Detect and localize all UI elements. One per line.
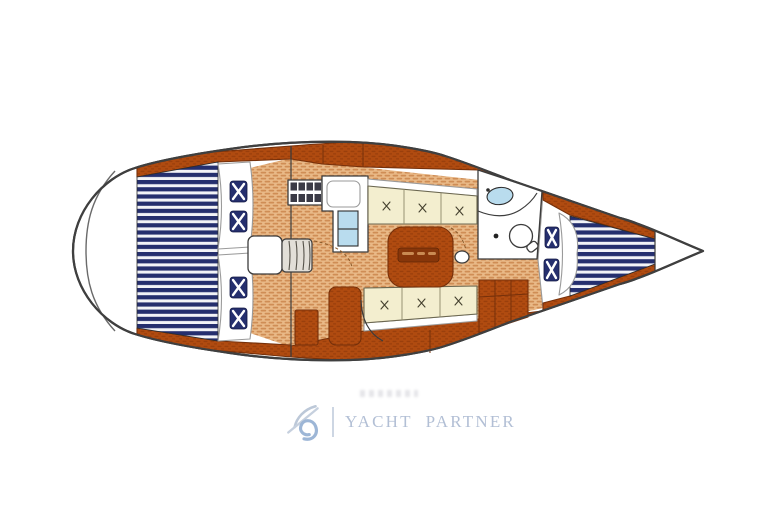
head-compartment: [478, 170, 542, 259]
faint-watermark-text: [360, 390, 418, 397]
logo-divider: [332, 407, 334, 437]
aft-berth-pillow-top: [218, 162, 253, 249]
yacht-partner-logo: YACHTPARTNER: [283, 401, 516, 443]
head-faucet: [486, 188, 490, 192]
companionway-steps: [248, 236, 312, 274]
aft-double-berth: [137, 162, 218, 341]
cabinet-small: [295, 310, 318, 345]
yacht-floorplan-page: YACHTPARTNER: [0, 0, 772, 519]
cabinet-large: [329, 287, 361, 345]
table-stool: [455, 251, 469, 263]
galley-sink: [327, 181, 360, 207]
logo-wordmark: YACHTPARTNER: [345, 412, 516, 432]
step-platform: [248, 236, 282, 274]
yacht-partner-swirl-icon: [283, 401, 325, 443]
head-drain: [494, 234, 499, 239]
logo-word-yacht: YACHT: [345, 412, 413, 431]
galley-stove: [288, 180, 322, 205]
logo-word-partner: PARTNER: [426, 412, 516, 431]
